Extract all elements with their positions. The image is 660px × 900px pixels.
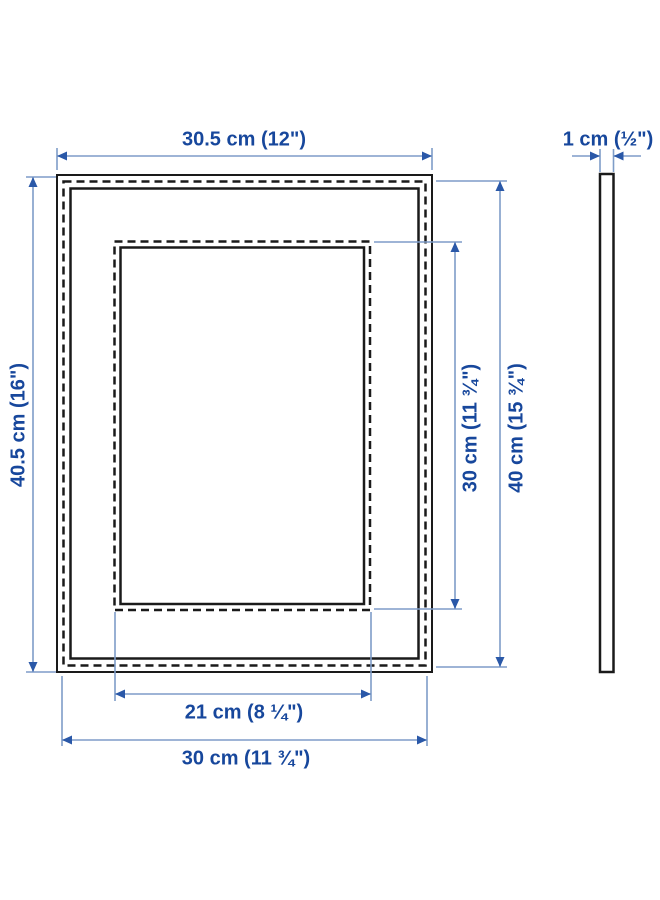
frame-diagram-drawing (0, 0, 660, 900)
arrow-left-icon (115, 690, 125, 699)
arrow-up-icon (496, 181, 505, 191)
mat-opening-edge (121, 248, 365, 605)
outer-width-label: 30.5 cm (12") (182, 129, 306, 152)
outer-height-label: 40.5 cm (16") (8, 363, 31, 487)
frame-side-profile (600, 174, 614, 672)
frame-inner-border-edge (71, 189, 419, 659)
arrow-right-icon (417, 736, 427, 745)
picture-height-label: 40 cm (15 ¾") (506, 363, 529, 493)
arrow-down-icon (29, 662, 38, 672)
opening-width-label: 21 cm (8 ¼") (185, 702, 303, 725)
arrow-right-icon (422, 152, 432, 161)
dimension-opening-width (115, 612, 371, 701)
frame-dimension-diagram: 30.5 cm (12") 1 cm (½") 40.5 cm (16") 30… (0, 0, 660, 900)
arrow-right-icon (590, 152, 600, 161)
arrow-left-icon (57, 152, 67, 161)
arrow-right-icon (361, 690, 371, 699)
dimension-outer-height (26, 177, 56, 672)
picture-width-label: 30 cm (11 ¾") (182, 748, 310, 771)
arrow-down-icon (451, 599, 460, 609)
arrow-up-icon (29, 177, 38, 187)
frame-front-view (57, 175, 432, 672)
frame-side-view (600, 174, 614, 672)
dimension-depth (572, 149, 641, 172)
arrow-down-icon (496, 657, 505, 667)
mat-opening-dashed-edge (115, 242, 371, 611)
frame-picture-size-dashed-edge (64, 182, 426, 666)
arrow-left-icon (614, 152, 624, 161)
arrow-up-icon (451, 242, 460, 252)
depth-label: 1 cm (½") (563, 129, 654, 152)
arrow-left-icon (62, 736, 72, 745)
opening-height-label: 30 cm (11 ¾") (460, 364, 483, 492)
